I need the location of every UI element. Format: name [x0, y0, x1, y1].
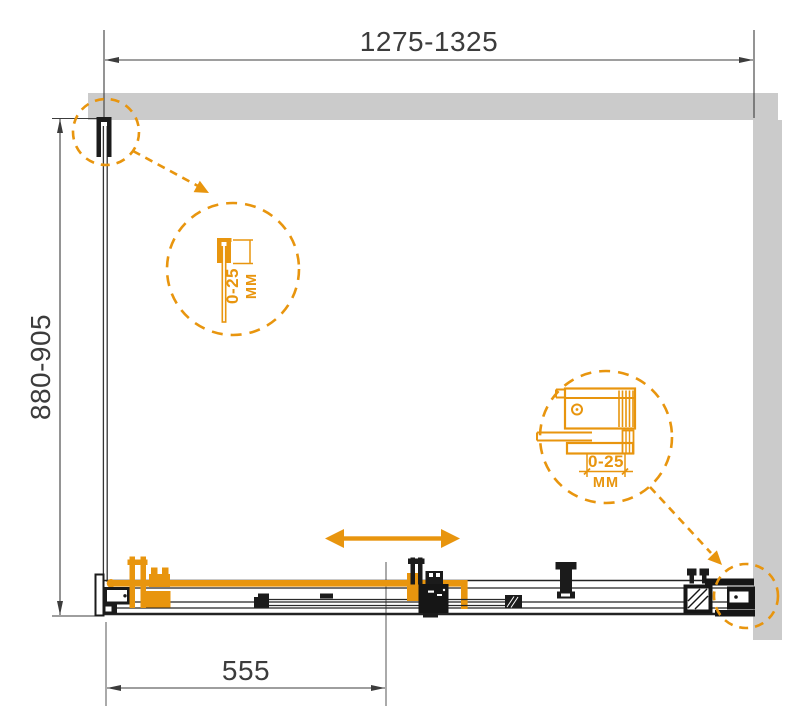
detail-bracket-unit-label: MM — [593, 475, 619, 491]
detail-bracket-adjustment-label: 0-25 — [588, 452, 624, 471]
roller-carriage-left — [128, 557, 171, 609]
side-wall — [753, 120, 782, 640]
door-track-assembly — [95, 557, 755, 618]
dimension-left: 880-905 — [25, 119, 104, 617]
diagram-canvas: 1275-1325 880-905 555 — [0, 0, 800, 725]
detail-leader-left — [133, 151, 209, 193]
detail-circle-wall-profile: 0-25 MM — [167, 203, 299, 335]
dimension-bottom-label: 555 — [222, 655, 270, 686]
back-wall — [88, 93, 778, 120]
track-hangers-right — [684, 569, 713, 614]
door-glass-panel — [254, 594, 522, 609]
detail-profile-unit-label: MM — [244, 273, 260, 299]
installation-diagram: 1275-1325 880-905 555 — [0, 0, 800, 725]
detail-leader-right — [650, 487, 722, 565]
detail-circle-wall-bracket: 0-25 MM — [537, 371, 672, 503]
side-glass-panel — [103, 126, 107, 582]
detail-profile-adjustment-label: 0-25 — [223, 268, 242, 304]
dimension-left-label: 880-905 — [25, 314, 56, 420]
slide-direction-arrow-icon — [325, 529, 460, 548]
dimension-top-label: 1275-1325 — [360, 26, 498, 57]
